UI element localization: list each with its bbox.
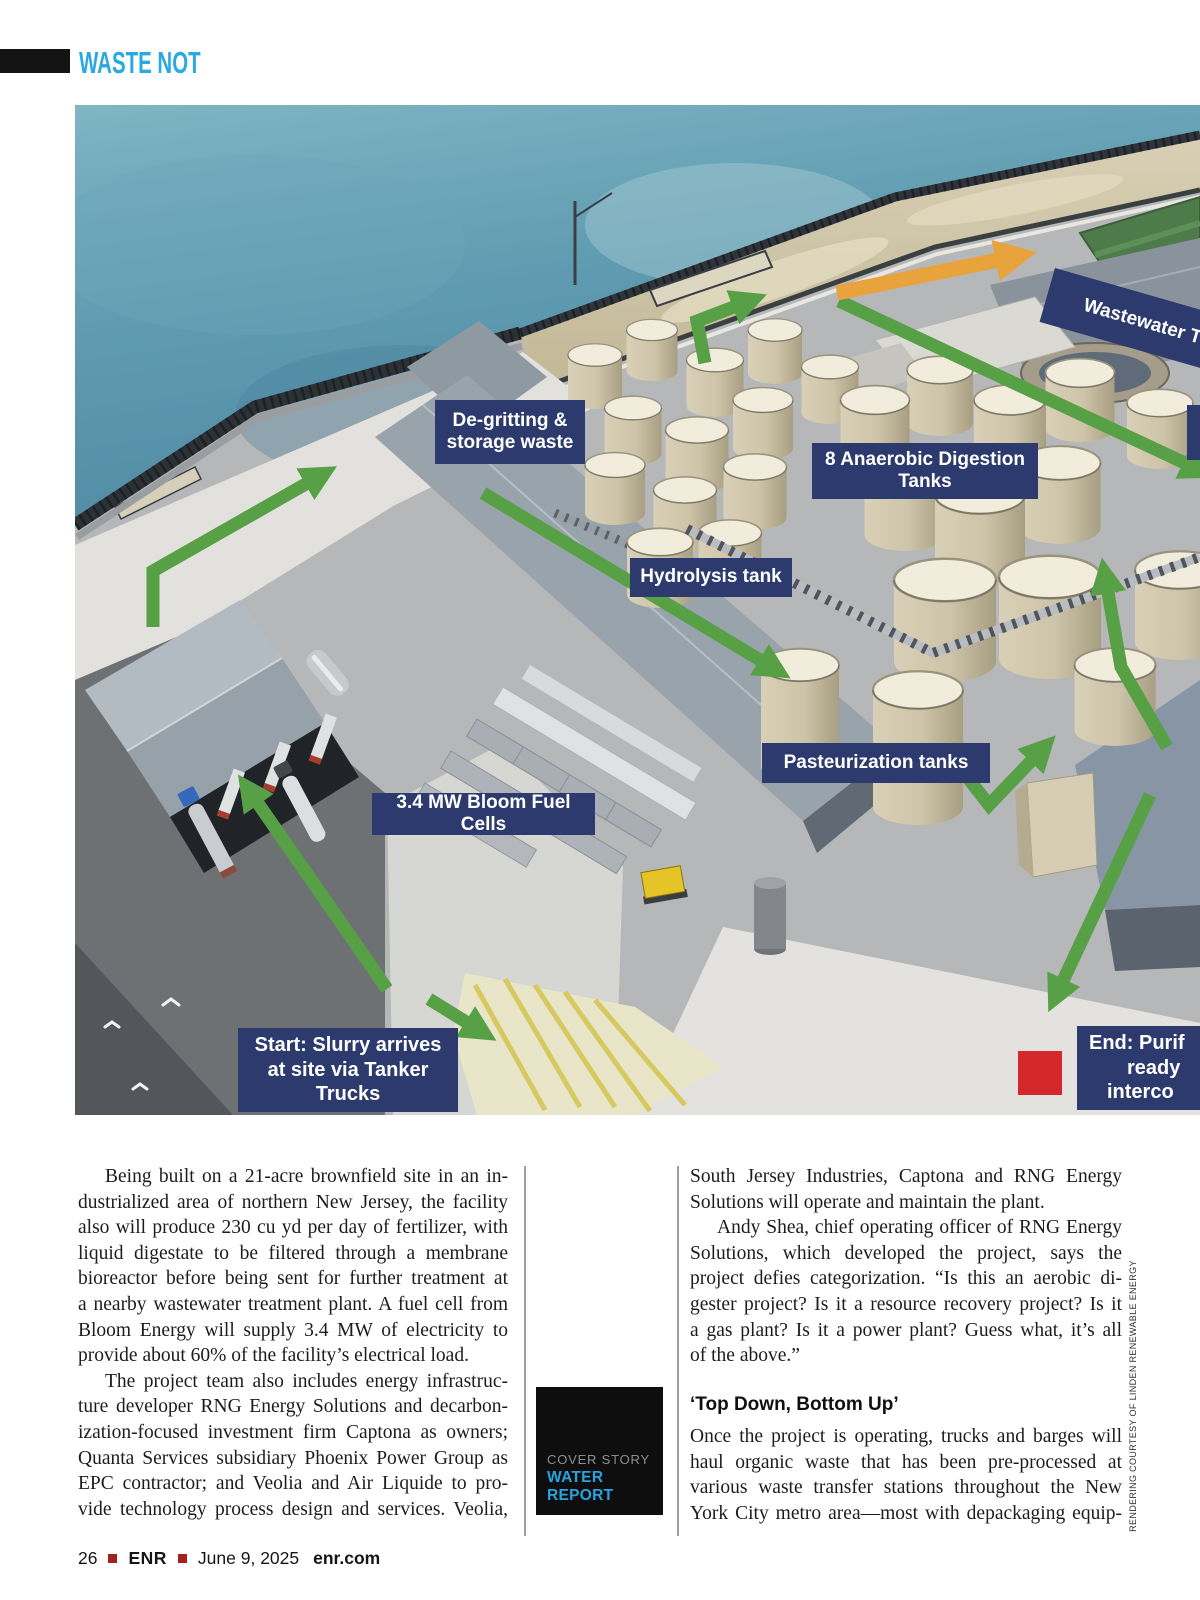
article-line: gester project? Is it a resource recover… [690,1292,1122,1318]
article-line: a nearby wastewater treatment plant. A f… [78,1292,508,1318]
article-line: a gas plant? Is it a power plant? Guess … [690,1318,1122,1344]
article-column-right-bottom: Once the project is operating, trucks an… [690,1424,1122,1526]
article-line: South Jersey Industries, Captona and RNG… [690,1164,1122,1190]
article-column-right: South Jersey Industries, Captona and RNG… [690,1164,1122,1369]
label-digestion-tanks: 8 Anaerobic Digestion Tanks [812,443,1038,499]
label-degritting: De-gritting & storage waste [435,400,585,464]
article-line: haul organic waste that has been pre-pro… [690,1450,1122,1476]
article-line: Once the project is operating, trucks an… [690,1424,1122,1450]
label-end: End: Purif ready interco [1077,1026,1200,1110]
label-pasteurization-tanks: Pasteurization tanks [762,743,990,783]
article-line: Andy Shea, chief operating officer of RN… [690,1215,1122,1241]
article-column-left: Being built on a 21-acre brownfield site… [78,1164,508,1522]
article-line: Quanta Services subsidiary Phoenix Power… [78,1446,508,1472]
article-line: provide about 60% of the facility’s elec… [78,1343,508,1369]
article-line: various waste transfer stations througho… [690,1475,1122,1501]
article-line: bioreactor before being sent for further… [78,1266,508,1292]
page-footer: 26 ENR June 9, 2025 enr.com [78,1548,380,1569]
column-rule [677,1166,679,1536]
photo-credit: RENDERING COURTESY OF LINDEN RENEWABLE E… [1128,1260,1138,1532]
article-line: Bloom Energy will supply 3.4 MW of elect… [78,1318,508,1344]
end-point-square [1018,1051,1062,1095]
article-line: vide technology process design and servi… [78,1497,508,1523]
article-line: Being built on a 21-acre brownfield site… [78,1164,508,1190]
subhead: ‘Top Down, Bottom Up’ [690,1394,1122,1416]
magazine-brand: ENR [128,1548,166,1569]
page-number: 26 [78,1548,97,1569]
article-line: also will produce 230 cu yd per day of f… [78,1215,508,1241]
bullet-square-icon [108,1554,117,1563]
article-line: ture developer RNG Energy Solutions and … [78,1394,508,1420]
article-line: Solutions will operate and maintain the … [690,1190,1122,1216]
article-line: of the above.” [690,1343,1122,1369]
cover-story-badge: COVER STORY WATER REPORT [536,1387,663,1515]
label-fuel-cells: 3.4 MW Bloom Fuel Cells [372,793,595,835]
kicker-bar [0,49,70,73]
clipped-label-sliver [1187,405,1200,460]
website: enr.com [313,1548,380,1569]
article-line: ization-focused investment firm Captona … [78,1420,508,1446]
facility-rendering-figure: De-gritting & storage waste 8 Anaerobic … [75,105,1200,1115]
column-rule [524,1166,526,1536]
article-line: Solutions, which developed the project, … [690,1241,1122,1267]
article-line: liquid digestate to be filtered through … [78,1241,508,1267]
bullet-square-icon [178,1554,187,1563]
section-tag: WASTE NOT [79,45,201,81]
issue-date: June 9, 2025 [198,1548,299,1569]
article-line: The project team also includes energy in… [78,1369,508,1395]
article-line: EPC contractor; and Veolia and Air Liqui… [78,1471,508,1497]
label-hydrolysis-tank: Hydrolysis tank [630,558,792,597]
label-start: Start: Slurry arrives at site via Tanker… [238,1028,458,1112]
article-line: dustrialized area of northern New Jersey… [78,1190,508,1216]
article-line: project defies categorization. “Is this … [690,1266,1122,1292]
rendering-scene [75,105,1200,1115]
badge-title: WATER REPORT [547,1469,663,1505]
article-line: York City metro area—most with depackagi… [690,1501,1122,1527]
badge-kicker: COVER STORY [547,1452,663,1467]
